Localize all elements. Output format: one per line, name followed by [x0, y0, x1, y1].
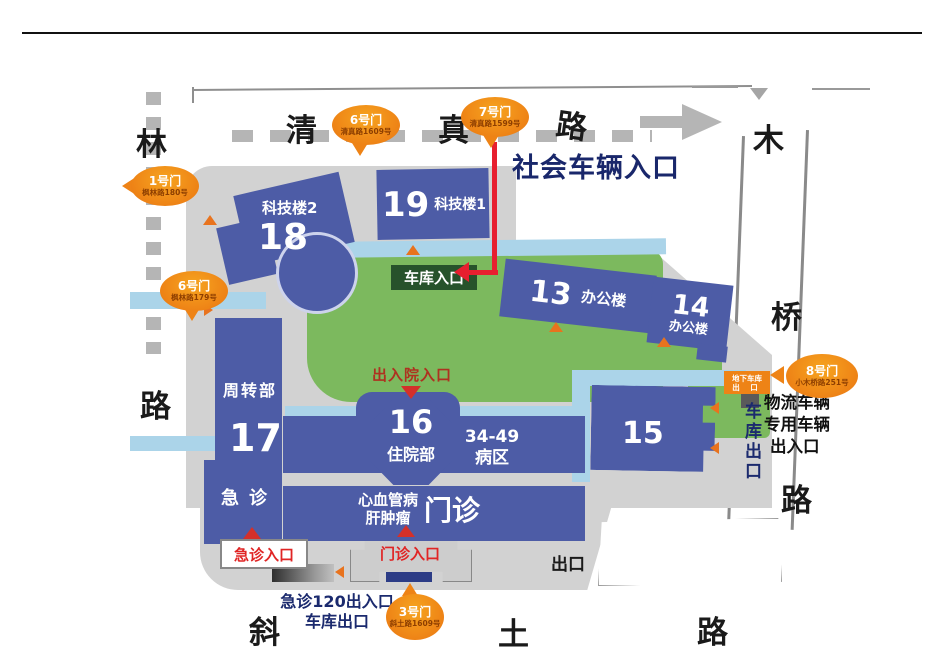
- underground-garage-line1: 地下车库: [732, 374, 762, 383]
- gate6-west-name: 6号门: [178, 280, 210, 294]
- ward-label: 病区: [460, 449, 524, 468]
- road-label-xiaomuqiao-2: 桥: [771, 303, 802, 334]
- gate8-tail: [770, 366, 784, 384]
- building-19-number: 19: [382, 187, 429, 224]
- underground-garage-line2: 出 口: [732, 383, 762, 392]
- podium-footer-bar: [386, 572, 432, 582]
- road-label-qingzhen-3: 路: [554, 110, 589, 145]
- qingzhen-arrow-head: [682, 104, 722, 140]
- building-18-label: 科技楼2: [262, 200, 317, 217]
- building-13-label: 办公楼: [580, 288, 627, 309]
- path-top: [338, 238, 666, 257]
- building-13-number: 13: [528, 274, 573, 312]
- corner-line-left: [692, 86, 738, 88]
- gate7-address: 清真路1599号: [470, 120, 521, 128]
- gate3-name: 3号门: [399, 606, 431, 620]
- gate6-north-badge: 6号门 清真路1609号: [332, 105, 400, 145]
- garage-exit-right-label: 车库出口: [739, 402, 764, 502]
- er-entrance-sign: 急诊入口: [220, 539, 308, 569]
- gate1-badge: 1号门 枫林路180号: [131, 166, 199, 206]
- garage-exit-bottom-label: 车库出口: [272, 608, 402, 632]
- road-label-fenglin-1: 林: [136, 130, 167, 161]
- building-16-label: 住院部: [379, 446, 443, 464]
- path-west-lower: [130, 436, 222, 451]
- corner-line-right: [812, 88, 870, 90]
- building-14-label: 办公楼: [668, 319, 708, 338]
- logistics-note: 物流车辆 专用车辆 出入口: [764, 392, 830, 458]
- gate7-name: 7号门: [479, 106, 511, 120]
- boundary-stub: [192, 87, 194, 103]
- underground-garage-exit-sign: 地下车库 出 口: [724, 371, 770, 394]
- gate6-west-badge: 6号门 枫林路179号: [160, 271, 228, 311]
- ward-range-label: 34-49: [460, 428, 524, 447]
- route-arrow-vertical: [492, 142, 497, 272]
- marker-up-4: [657, 337, 671, 347]
- xiaomuqiao-road-arrow: [750, 88, 768, 100]
- building-17-dept-label: 周转部: [223, 382, 277, 400]
- gate6-north-name: 6号门: [350, 114, 382, 128]
- gate3-address: 斜土路1609号: [390, 620, 441, 628]
- path-east-horizontal: [572, 370, 746, 386]
- admission-entrance-label: 出入院入口: [372, 364, 452, 385]
- exit-label: 出口: [551, 550, 585, 575]
- admission-entrance-marker: [401, 386, 421, 399]
- road-label-xietu-3: 路: [697, 618, 728, 649]
- gate1-address: 枫林路180号: [142, 189, 188, 197]
- building-15-number: 15: [622, 417, 664, 450]
- marker-left-3: [335, 566, 344, 578]
- gate7-badge: 7号门 清真路1599号: [461, 97, 529, 137]
- campus-north-boundary: [192, 85, 752, 91]
- outpatient-entrance-marker: [397, 525, 415, 537]
- building-16-number: 16: [383, 405, 439, 440]
- road-label-xietu-2: 土: [498, 620, 529, 651]
- er-dept-label: 急诊: [221, 489, 277, 509]
- logistics-line3: 出入口: [764, 436, 830, 458]
- route-arrow-horizontal: [468, 270, 498, 275]
- building-17-number: 17: [229, 418, 282, 460]
- marker-left-2: [710, 442, 719, 454]
- marker-up-1: [203, 215, 217, 225]
- logistics-line2: 专用车辆: [764, 414, 830, 436]
- road-label-xiaomuqiao-1: 木: [753, 126, 784, 157]
- gate8-badge: 8号门 小木桥路251号: [786, 354, 858, 398]
- gate8-name: 8号门: [806, 365, 838, 379]
- south-road-block: [598, 518, 782, 586]
- route-arrow-head: [454, 262, 469, 282]
- gate8-address: 小木桥路251号: [795, 379, 848, 387]
- building-19-label: 科技楼1: [434, 198, 486, 213]
- er-entrance-marker: [243, 527, 261, 539]
- road-label-fenglin-2: 路: [140, 392, 171, 423]
- marker-up-2: [406, 245, 420, 255]
- marker-left-1: [710, 402, 719, 414]
- qingzhen-arrow-body: [640, 116, 684, 128]
- er-entrance-label: 急诊入口: [234, 544, 294, 565]
- hospital-campus-map: 林 路 清 真 路 木 桥 路 斜 土 路 13 办公楼 14 办公楼 科技楼2…: [0, 0, 944, 666]
- gate6-west-address: 枫林路179号: [171, 294, 217, 302]
- gate1-name: 1号门: [149, 175, 181, 189]
- outpatient-entrance-label: 门诊入口: [372, 543, 448, 564]
- top-divider: [22, 32, 922, 34]
- marker-up-3: [549, 322, 563, 332]
- road-label-qingzhen-1: 清: [286, 116, 317, 147]
- outpatient-big-label: 门诊: [424, 496, 480, 527]
- gate6-north-address: 清真路1609号: [341, 128, 392, 136]
- social-vehicle-entrance-label: 社会车辆入口: [512, 146, 680, 185]
- building-14-fragment: [696, 343, 728, 362]
- building-18-number: 18: [258, 218, 308, 258]
- outpatient-dept-line1: 心血管病: [350, 492, 426, 509]
- road-label-xiaomuqiao-3: 路: [781, 486, 812, 517]
- building-19-labels: 19 科技楼1: [380, 178, 488, 234]
- gate3-badge: 3号门 斜土路1609号: [386, 594, 444, 640]
